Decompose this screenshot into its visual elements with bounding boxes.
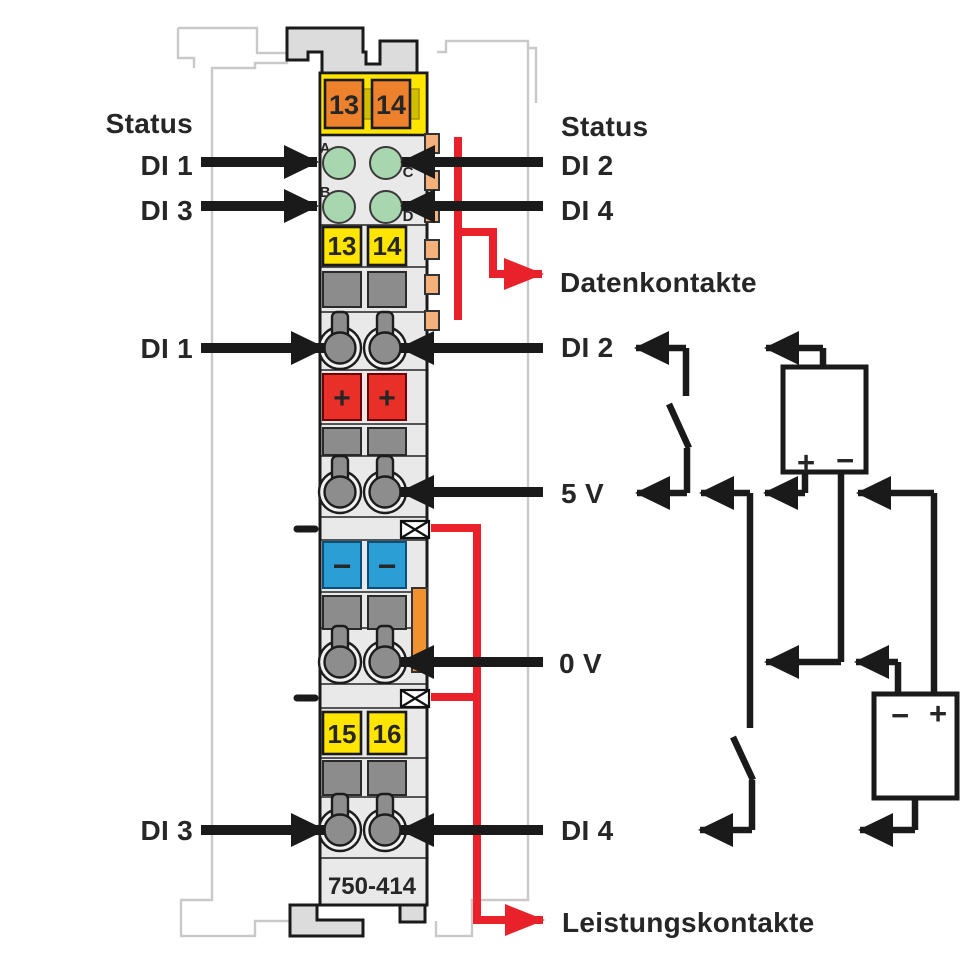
tag-14: 14 — [373, 231, 402, 261]
tag-16: 16 — [373, 719, 402, 749]
battery-lower-plus: + — [929, 696, 947, 731]
led-di4 — [370, 191, 402, 223]
minus-right: − — [378, 548, 397, 584]
tag-13: 13 — [328, 231, 357, 261]
led-di1 — [323, 147, 355, 179]
power-contacts-path — [431, 528, 543, 920]
switch-di4 — [700, 493, 753, 830]
led-di2 — [370, 147, 402, 179]
supply-source-upper: + − — [765, 348, 866, 662]
label-di1-led: DI 1 — [140, 150, 193, 181]
label-status-right: Status — [561, 111, 648, 142]
tag-15: 15 — [328, 719, 357, 749]
part-number: 750-414 — [328, 873, 417, 900]
label-di3-led: DI 3 — [140, 195, 193, 226]
module-foot-right — [400, 905, 425, 922]
wiring-diagram: 13 14 A B C D 13 14 — [0, 0, 964, 964]
label-leistungskontakte: Leistungskontakte — [562, 907, 814, 938]
module-foot-left — [290, 905, 363, 936]
diagram-canvas: 13 14 A B C D 13 14 — [0, 0, 964, 964]
plus-left: + — [333, 382, 351, 415]
external-circuit: + − − + — [636, 348, 957, 830]
label-di3-input: DI 3 — [140, 815, 193, 846]
led-di3 — [323, 191, 355, 223]
switch-di2 — [636, 348, 689, 493]
label-di4-led: DI 4 — [561, 195, 614, 226]
label-5v: 5 V — [561, 478, 604, 509]
battery-lower-minus: − — [891, 698, 909, 733]
label-di1-input: DI 1 — [140, 333, 193, 364]
minus-left: − — [333, 548, 352, 584]
top-terminal-13-label: 13 — [329, 90, 359, 120]
plus-right: + — [378, 382, 396, 415]
power-jumper-contact-lower — [401, 690, 429, 707]
left-labels: Status DI 1 DI 3 DI 1 DI 3 — [106, 108, 193, 846]
label-status-left: Status — [106, 108, 193, 139]
label-datenkontakte: Datenkontakte — [560, 267, 757, 298]
module-top-latch — [287, 28, 417, 73]
right-labels: Status DI 2 DI 4 Datenkontakte DI 2 5 V … — [559, 111, 814, 938]
top-terminal-header: 13 14 — [320, 73, 427, 135]
polarity-marks — [297, 529, 315, 698]
label-0v: 0 V — [559, 648, 602, 679]
top-terminal-14-label: 14 — [376, 90, 406, 120]
label-di2-input: DI 2 — [561, 332, 614, 363]
label-di2-led: DI 2 — [561, 150, 614, 181]
label-di4-input: DI 4 — [561, 815, 614, 846]
power-jumper-contact-upper — [401, 521, 429, 538]
supply-source-lower: − + — [856, 493, 957, 830]
